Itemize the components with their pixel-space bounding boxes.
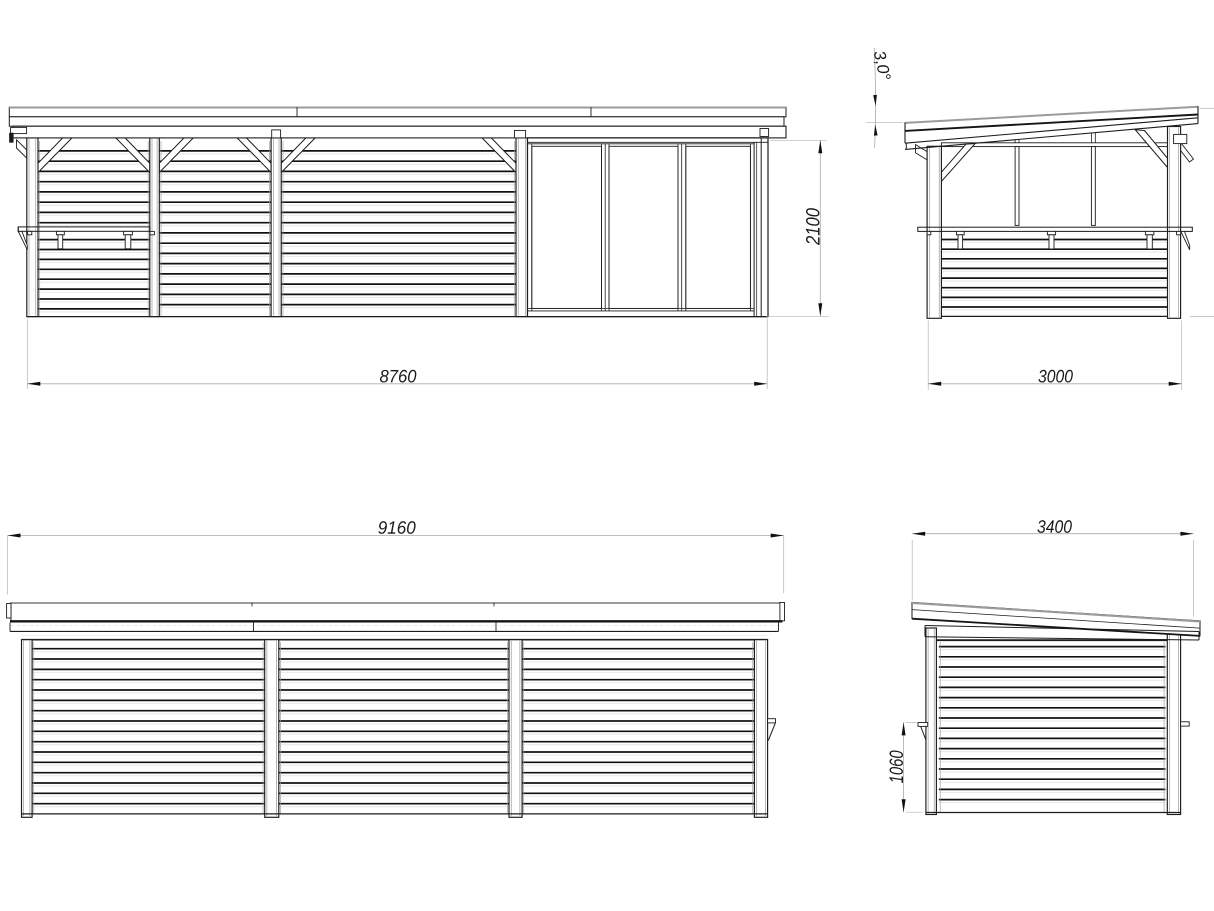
svg-text:3400: 3400 bbox=[1037, 517, 1072, 537]
svg-text:1060: 1060 bbox=[886, 750, 908, 783]
svg-text:3000: 3000 bbox=[1038, 366, 1073, 386]
svg-text:2100: 2100 bbox=[803, 208, 825, 246]
svg-text:9160: 9160 bbox=[378, 518, 416, 538]
svg-text:8760: 8760 bbox=[379, 366, 416, 386]
